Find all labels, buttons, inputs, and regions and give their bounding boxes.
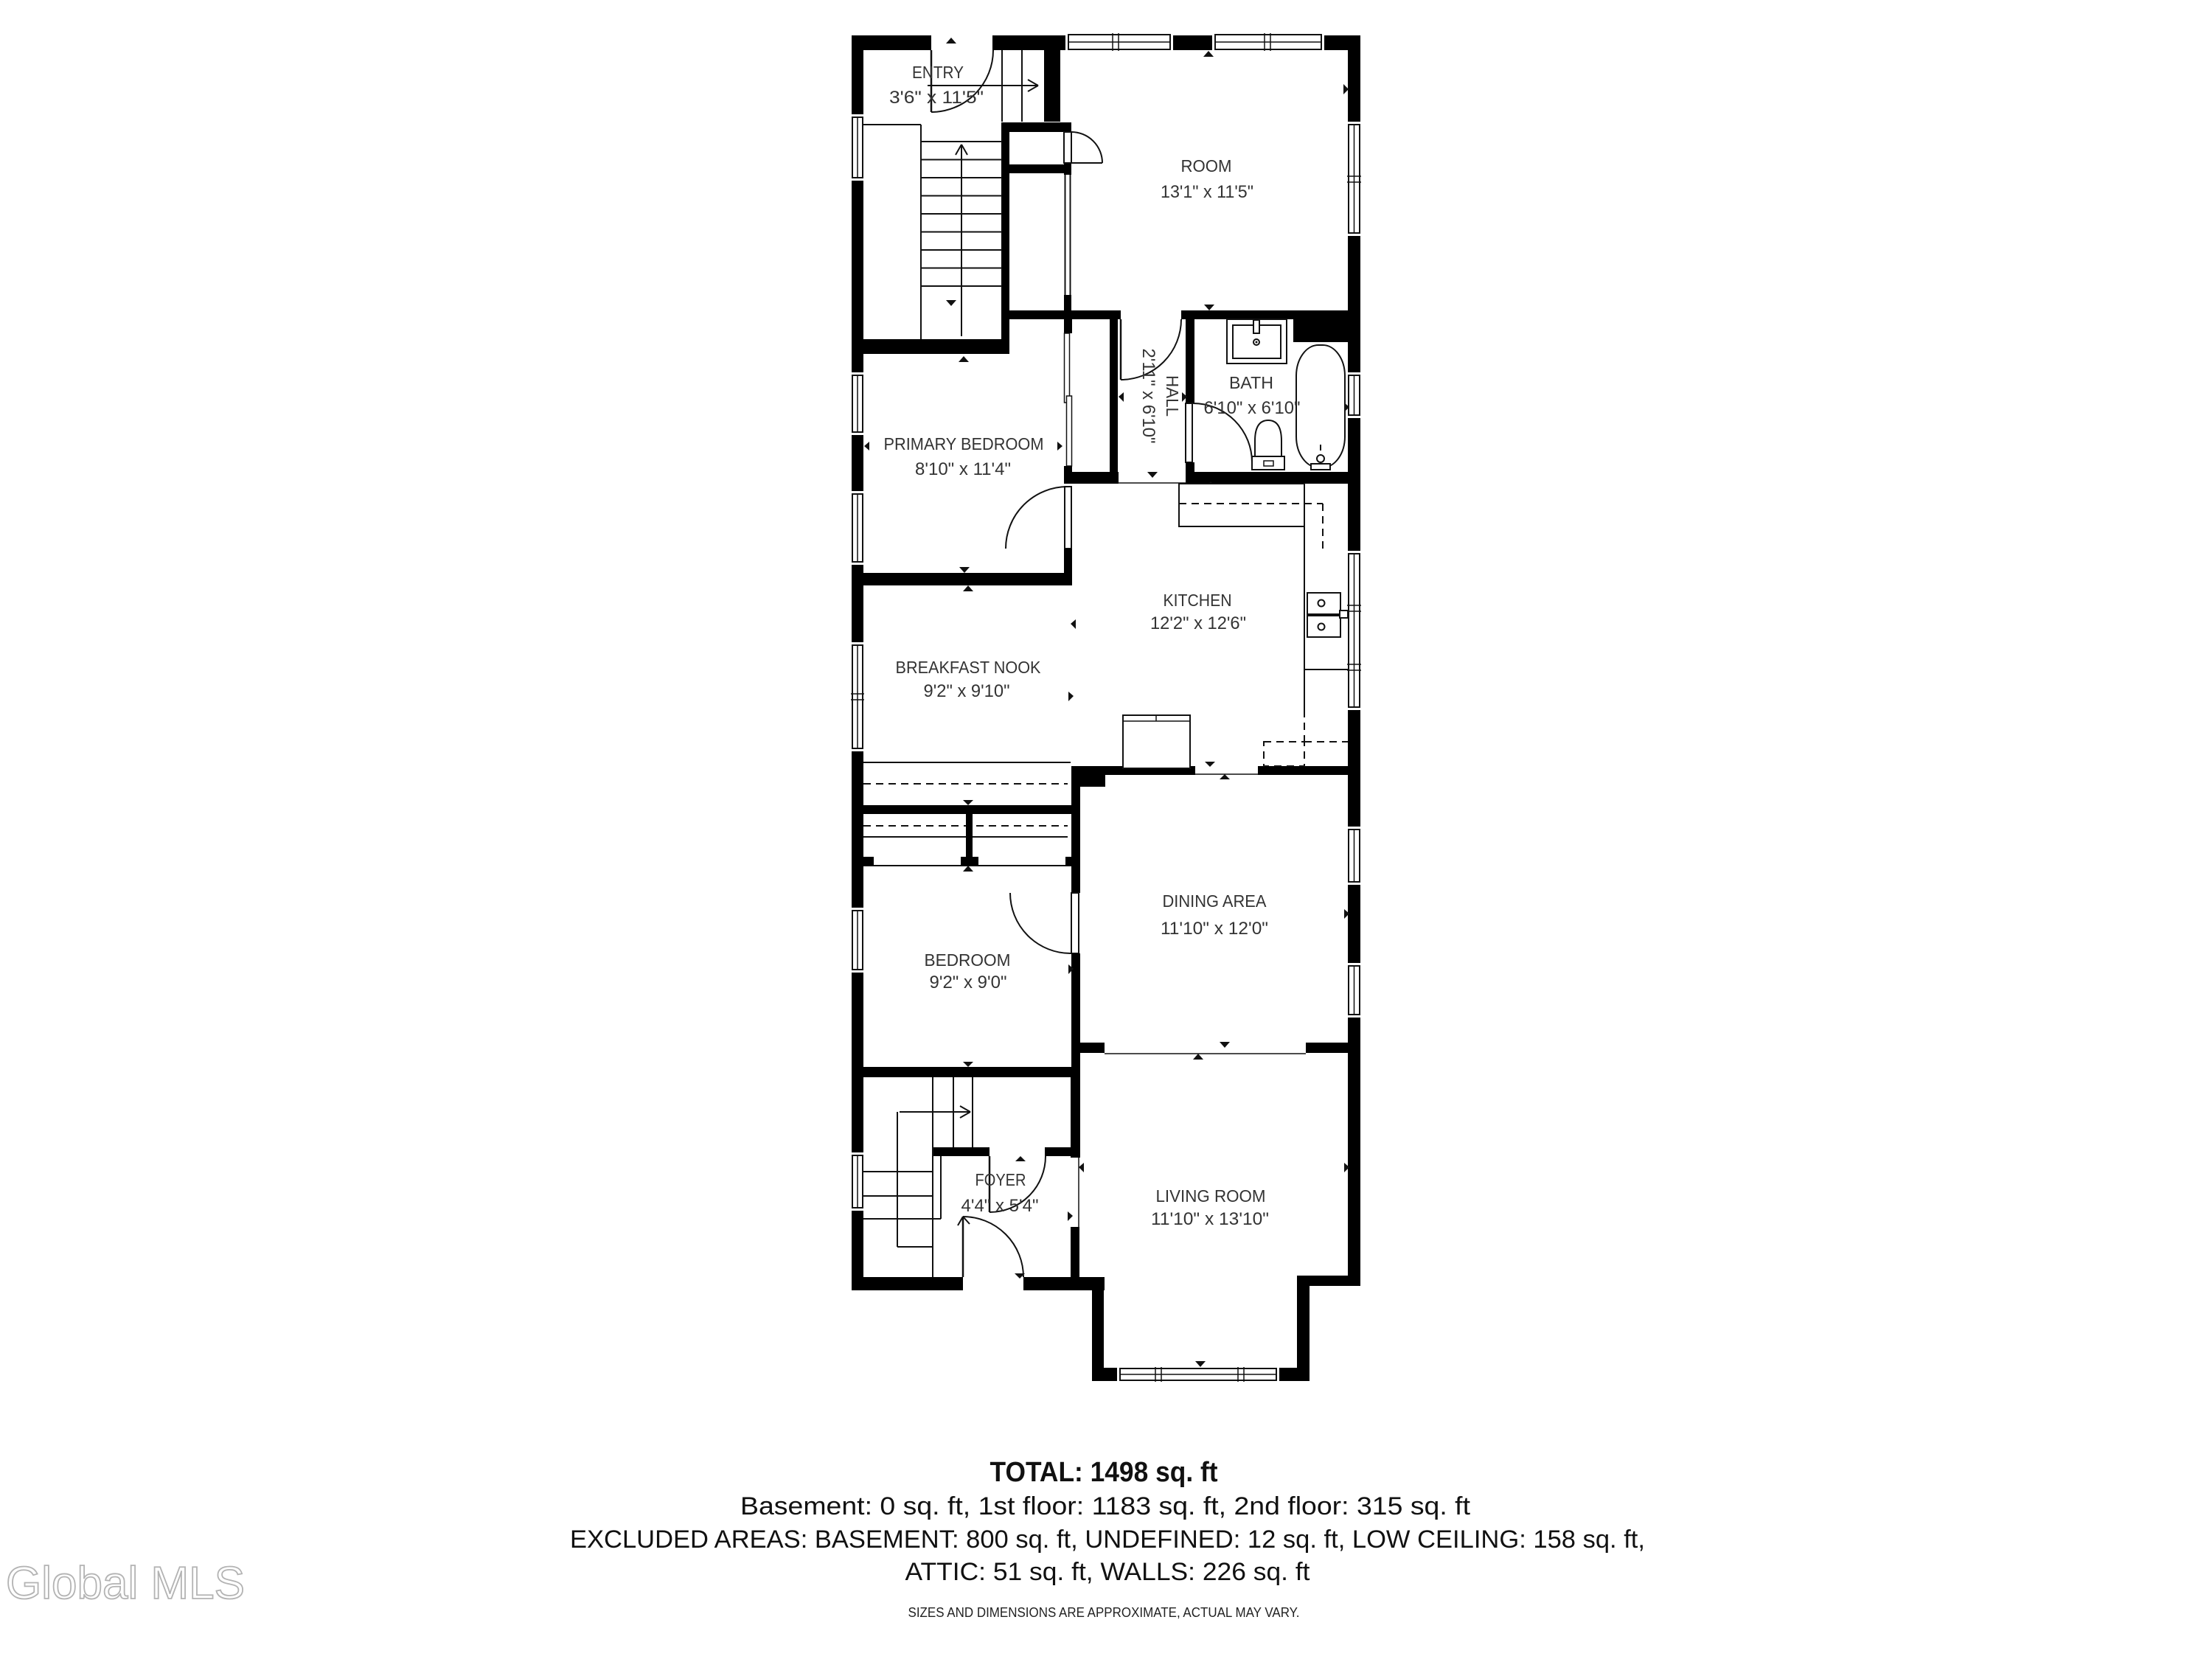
svg-text:9'2" x 9'0": 9'2" x 9'0" [930, 973, 1007, 992]
svg-text:11'10" x 12'0": 11'10" x 12'0" [1161, 919, 1268, 939]
svg-text:ROOM: ROOM [1181, 156, 1232, 175]
svg-text:DINING AREA: DINING AREA [1163, 891, 1267, 911]
svg-text:PRIMARY BEDROOM: PRIMARY BEDROOM [884, 434, 1044, 453]
svg-text:4'4" x 5'4": 4'4" x 5'4" [961, 1196, 1039, 1216]
svg-text:LIVING ROOM: LIVING ROOM [1156, 1186, 1266, 1206]
svg-text:11'10" x 13'10": 11'10" x 13'10" [1151, 1209, 1269, 1229]
svg-text:ATTIC: 51 sq. ft, WALLS: 226 s: ATTIC: 51 sq. ft, WALLS: 226 sq. ft [905, 1558, 1311, 1586]
svg-text:HALL: HALL [1163, 375, 1182, 417]
svg-text:FOYER: FOYER [975, 1170, 1026, 1189]
svg-text:TOTAL: 1498 sq. ft: TOTAL: 1498 sq. ft [990, 1457, 1218, 1488]
svg-text:9'2" x 9'10": 9'2" x 9'10" [924, 681, 1010, 701]
svg-text:13'1" x 11'5": 13'1" x 11'5" [1161, 182, 1253, 202]
svg-text:6'10" x 6'10": 6'10" x 6'10" [1204, 398, 1301, 418]
svg-text:Global MLS: Global MLS [6, 1558, 245, 1609]
svg-text:SIZES AND DIMENSIONS ARE APPRO: SIZES AND DIMENSIONS ARE APPROXIMATE, AC… [908, 1605, 1300, 1620]
svg-text:Basement: 0 sq. ft, 1st floor:: Basement: 0 sq. ft, 1st floor: 1183 sq. … [740, 1492, 1471, 1520]
svg-text:BATH: BATH [1229, 373, 1273, 392]
svg-text:KITCHEN: KITCHEN [1164, 591, 1232, 610]
svg-text:ENTRY: ENTRY [912, 63, 964, 82]
svg-text:12'2" x 12'6": 12'2" x 12'6" [1150, 613, 1246, 633]
svg-text:8'10" x 11'4": 8'10" x 11'4" [915, 459, 1011, 479]
svg-text:BREAKFAST NOOK: BREAKFAST NOOK [896, 658, 1042, 677]
svg-text:3'6" x 11'5": 3'6" x 11'5" [889, 88, 984, 108]
svg-text:2'11" x 6'10": 2'11" x 6'10" [1138, 349, 1158, 444]
svg-text:BEDROOM: BEDROOM [925, 950, 1011, 970]
svg-text:EXCLUDED AREAS: BASEMENT: 800: EXCLUDED AREAS: BASEMENT: 800 sq. ft, UN… [570, 1526, 1645, 1554]
